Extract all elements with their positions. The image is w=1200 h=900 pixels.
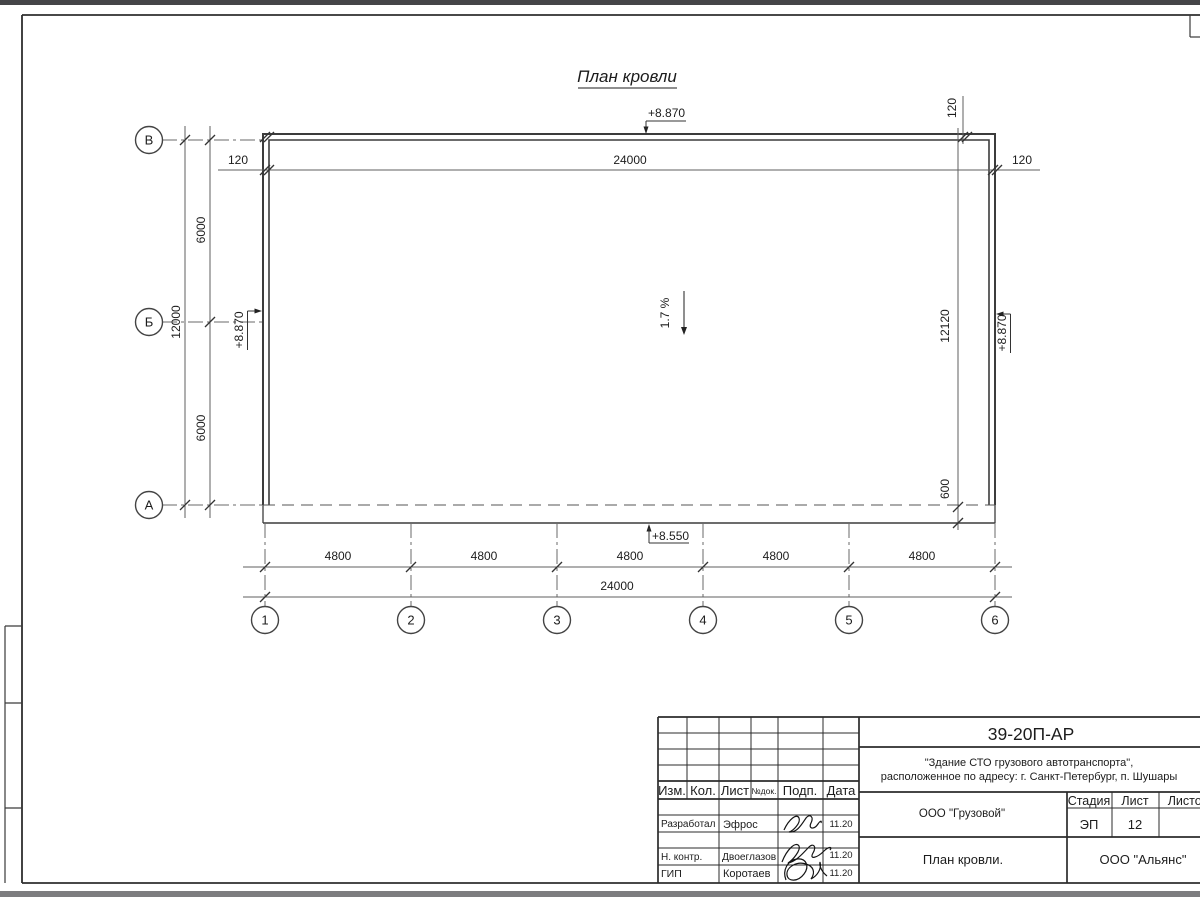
dim-120-corner: 120 bbox=[945, 98, 959, 118]
col-data: Дата bbox=[827, 783, 857, 798]
col-podp: Подп. bbox=[783, 783, 818, 798]
elevation-mark-right: +8.870 bbox=[995, 312, 1011, 354]
axis-bubble-labels: В Б А 1 2 3 4 5 6 bbox=[145, 133, 999, 628]
elevation-left-label: +8.870 bbox=[232, 311, 246, 348]
titleblock-header-row: Изм. Кол. Лист №док. Подп. Дата bbox=[658, 783, 856, 798]
drawing-sheet: План кровли bbox=[0, 0, 1200, 900]
object-line2: расположенное по адресу: г. Санкт-Петерб… bbox=[881, 771, 1178, 783]
elevation-mark-top: +8.870 bbox=[644, 106, 687, 134]
name-gip: Коротаев bbox=[723, 868, 771, 880]
col-ndok: №док. bbox=[752, 786, 777, 796]
signature-ncontrol bbox=[782, 844, 831, 863]
frame-side-boxes bbox=[5, 15, 1200, 883]
col-kol: Кол. bbox=[690, 783, 716, 798]
dim-4800-2: 4800 bbox=[471, 549, 498, 563]
arrow-down-icon bbox=[644, 127, 649, 135]
dim-6000-upper: 6000 bbox=[194, 216, 208, 243]
dimension-labels: 120 24000 120 120 4800 4800 4800 4800 48… bbox=[169, 98, 1032, 593]
drawing-title: План кровли bbox=[577, 67, 677, 86]
dim-120-top-right: 120 bbox=[1012, 153, 1032, 167]
dim-12120: 12120 bbox=[938, 309, 952, 343]
stage-label: Стадия bbox=[1068, 794, 1111, 808]
col-izm: Изм. bbox=[658, 783, 686, 798]
doc-number: 39-20П-АР bbox=[988, 724, 1075, 744]
axis-row-v: В bbox=[145, 133, 154, 148]
dimension-lines bbox=[185, 96, 1040, 597]
name-ncontrol: Двоеглазов bbox=[722, 852, 776, 863]
slope-arrow-icon bbox=[681, 327, 687, 335]
sheet-frame bbox=[22, 15, 1200, 883]
object-line1: "Здание СТО грузового автотранспорта", bbox=[925, 757, 1134, 769]
dim-4800-5: 4800 bbox=[909, 549, 936, 563]
axis-col-1: 1 bbox=[261, 613, 268, 628]
elevation-mark-bottom: +8.550 bbox=[647, 524, 690, 543]
dim-4800-1: 4800 bbox=[325, 549, 352, 563]
name-developer: Эфрос bbox=[723, 819, 758, 831]
role-ncontrol: Н. контр. bbox=[661, 852, 702, 863]
date-developer: 11.20 bbox=[829, 819, 852, 830]
date-ncontrol: 11.20 bbox=[829, 850, 852, 861]
sheet-drawing-title: План кровли. bbox=[923, 852, 1003, 867]
slope-label: 1.7 % bbox=[658, 297, 672, 328]
dimension-ticks bbox=[180, 132, 1002, 602]
role-gip: ГИП bbox=[661, 868, 682, 880]
sheet-number-value: 12 bbox=[1128, 817, 1142, 832]
roof-plan-drawing: План кровли bbox=[0, 0, 1200, 900]
titleblock-signature-rows: Разработал Эфрос 11.20 Н. контр. Двоегла… bbox=[661, 818, 853, 880]
titleblock-right: 39-20П-АР "Здание СТО грузового автотран… bbox=[881, 724, 1200, 867]
elevation-top-label: +8.870 bbox=[648, 106, 685, 120]
stage-value: ЭП bbox=[1080, 817, 1099, 832]
date-gip: 11.20 bbox=[829, 868, 852, 879]
axis-row-a: А bbox=[145, 498, 154, 513]
listov-label: Листов bbox=[1168, 794, 1200, 808]
elevation-bottom-label: +8.550 bbox=[652, 529, 689, 543]
dim-24000-top: 24000 bbox=[613, 153, 647, 167]
roof-outline bbox=[263, 134, 995, 523]
slope-annotation: 1.7 % bbox=[658, 291, 687, 335]
elevation-right-label: +8.870 bbox=[995, 314, 1009, 351]
elevation-mark-left: +8.870 bbox=[232, 309, 262, 351]
dim-24000-bottom: 24000 bbox=[600, 579, 634, 593]
axis-col-3: 3 bbox=[553, 613, 560, 628]
dim-4800-3: 4800 bbox=[617, 549, 644, 563]
company-name: ООО "Альянс" bbox=[1100, 852, 1187, 867]
axis-col-2: 2 bbox=[407, 613, 414, 628]
arrow-right-icon bbox=[255, 309, 263, 314]
dim-120-top-left: 120 bbox=[228, 153, 248, 167]
axis-col-6: 6 bbox=[991, 613, 998, 628]
dim-6000-lower: 6000 bbox=[194, 414, 208, 441]
axis-bubbles bbox=[136, 127, 1009, 634]
col-list: Лист bbox=[721, 783, 749, 798]
client-name: ООО "Грузовой" bbox=[919, 808, 1005, 820]
axis-row-b: Б bbox=[145, 315, 154, 330]
role-developer: Разработал bbox=[661, 818, 716, 830]
signature-developer bbox=[784, 816, 821, 832]
dim-600: 600 bbox=[938, 479, 952, 499]
axis-lines bbox=[162, 140, 995, 606]
axis-col-4: 4 bbox=[699, 613, 706, 628]
dim-4800-4: 4800 bbox=[763, 549, 790, 563]
list-label: Лист bbox=[1121, 794, 1148, 808]
dim-12000: 12000 bbox=[169, 305, 183, 339]
axis-col-5: 5 bbox=[845, 613, 852, 628]
